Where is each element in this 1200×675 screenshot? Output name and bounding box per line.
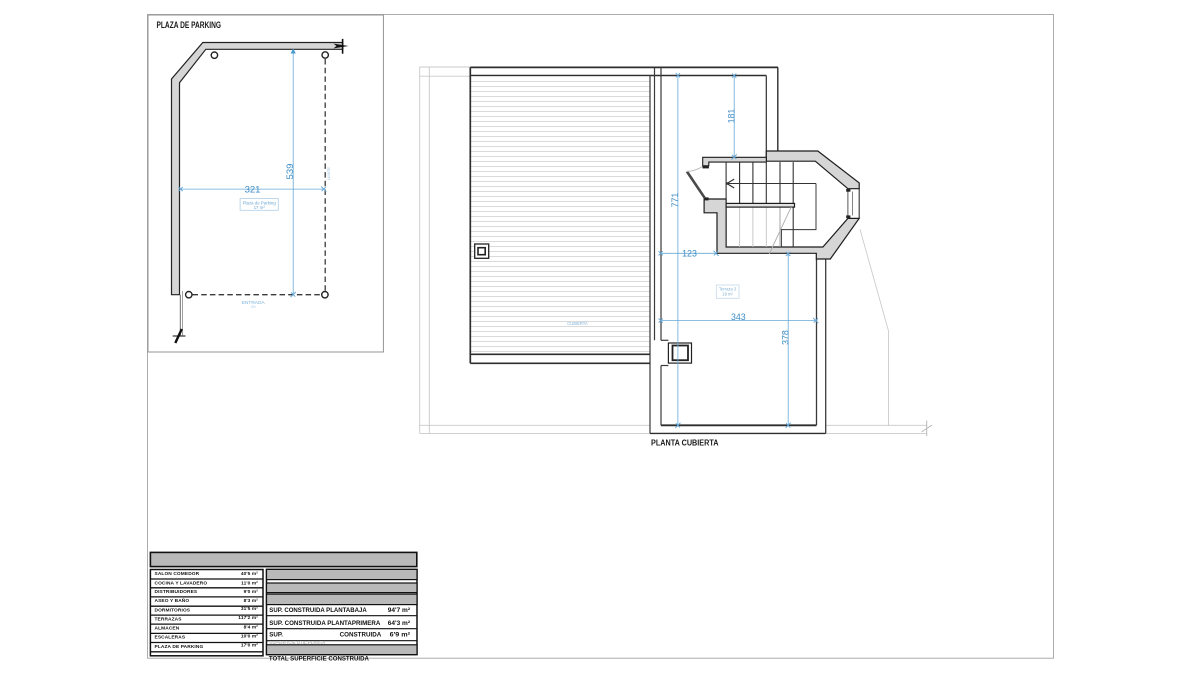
svg-text:343: 343 <box>731 312 746 322</box>
svg-text:11'0 m²: 11'0 m² <box>241 580 258 586</box>
svg-text:771: 771 <box>670 193 680 208</box>
svg-text:10'0 m²: 10'0 m² <box>241 634 258 640</box>
svg-text:SALON COMEDOR: SALON COMEDOR <box>155 571 200 577</box>
svg-text:8'4 m²: 8'4 m² <box>244 624 259 630</box>
svg-text:TOTAL SUPERFICIE CONSTRUIDA: TOTAL SUPERFICIE CONSTRUIDA <box>269 655 369 662</box>
svg-text:SUP. CONSTRUIDA PLANTAPRIMERA: SUP. CONSTRUIDA PLANTAPRIMERA <box>269 620 381 627</box>
svg-text:SUP.: SUP. <box>269 632 283 639</box>
svg-text:ASEO Y BAÑO: ASEO Y BAÑO <box>155 597 190 604</box>
svg-text:4%: 4% <box>251 305 256 309</box>
svg-text:SUPERFICIE UTIL PLANTA: SUPERFICIE UTIL PLANTA <box>269 640 326 645</box>
svg-text:378: 378 <box>780 330 790 345</box>
svg-text:ESCALERAS: ESCALERAS <box>155 635 186 641</box>
svg-text:PLANTA CUBIERTA: PLANTA CUBIERTA <box>651 438 719 448</box>
svg-text:17'0 m²: 17'0 m² <box>241 643 258 649</box>
svg-text:117'2 m²: 117'2 m² <box>238 615 258 621</box>
svg-text:SUP. CONSTRUIDA PLANTABAJA: SUP. CONSTRUIDA PLANTABAJA <box>269 607 367 614</box>
svg-text:LIMITE: LIMITE <box>326 167 331 180</box>
svg-text:CUBIERTA: CUBIERTA <box>567 321 588 327</box>
svg-text:123: 123 <box>682 249 697 259</box>
svg-text:DISTRIBUIDORES: DISTRIBUIDORES <box>155 589 198 595</box>
svg-text:DORMITORIOS: DORMITORIOS <box>155 608 191 614</box>
svg-text:181: 181 <box>726 109 736 124</box>
svg-text:TERRAZAS: TERRAZAS <box>155 617 183 623</box>
svg-text:31'5 m²: 31'5 m² <box>241 606 258 612</box>
svg-text:ALMACEN: ALMACEN <box>155 626 180 632</box>
svg-text:PLAZA DE PARKING: PLAZA DE PARKING <box>157 20 222 30</box>
svg-text:9'0 m²: 9'0 m² <box>244 589 259 595</box>
svg-text:PLAZA DE PARKING: PLAZA DE PARKING <box>155 644 204 650</box>
svg-text:94'7 m²: 94'7 m² <box>388 607 410 614</box>
svg-text:COCINA Y LAVADERO: COCINA Y LAVADERO <box>155 580 208 586</box>
svg-text:321: 321 <box>245 184 261 195</box>
svg-text:8'3 m²: 8'3 m² <box>244 598 259 604</box>
svg-text:6'9 m²: 6'9 m² <box>390 632 410 639</box>
svg-text:40'5 m²: 40'5 m² <box>241 571 258 577</box>
svg-text:19 m²: 19 m² <box>722 292 733 297</box>
svg-text:CONSTRUIDA: CONSTRUIDA <box>340 632 382 639</box>
svg-text:17 m²: 17 m² <box>254 205 266 210</box>
svg-text:539: 539 <box>285 164 296 180</box>
svg-text:64'3 m²: 64'3 m² <box>388 620 410 627</box>
